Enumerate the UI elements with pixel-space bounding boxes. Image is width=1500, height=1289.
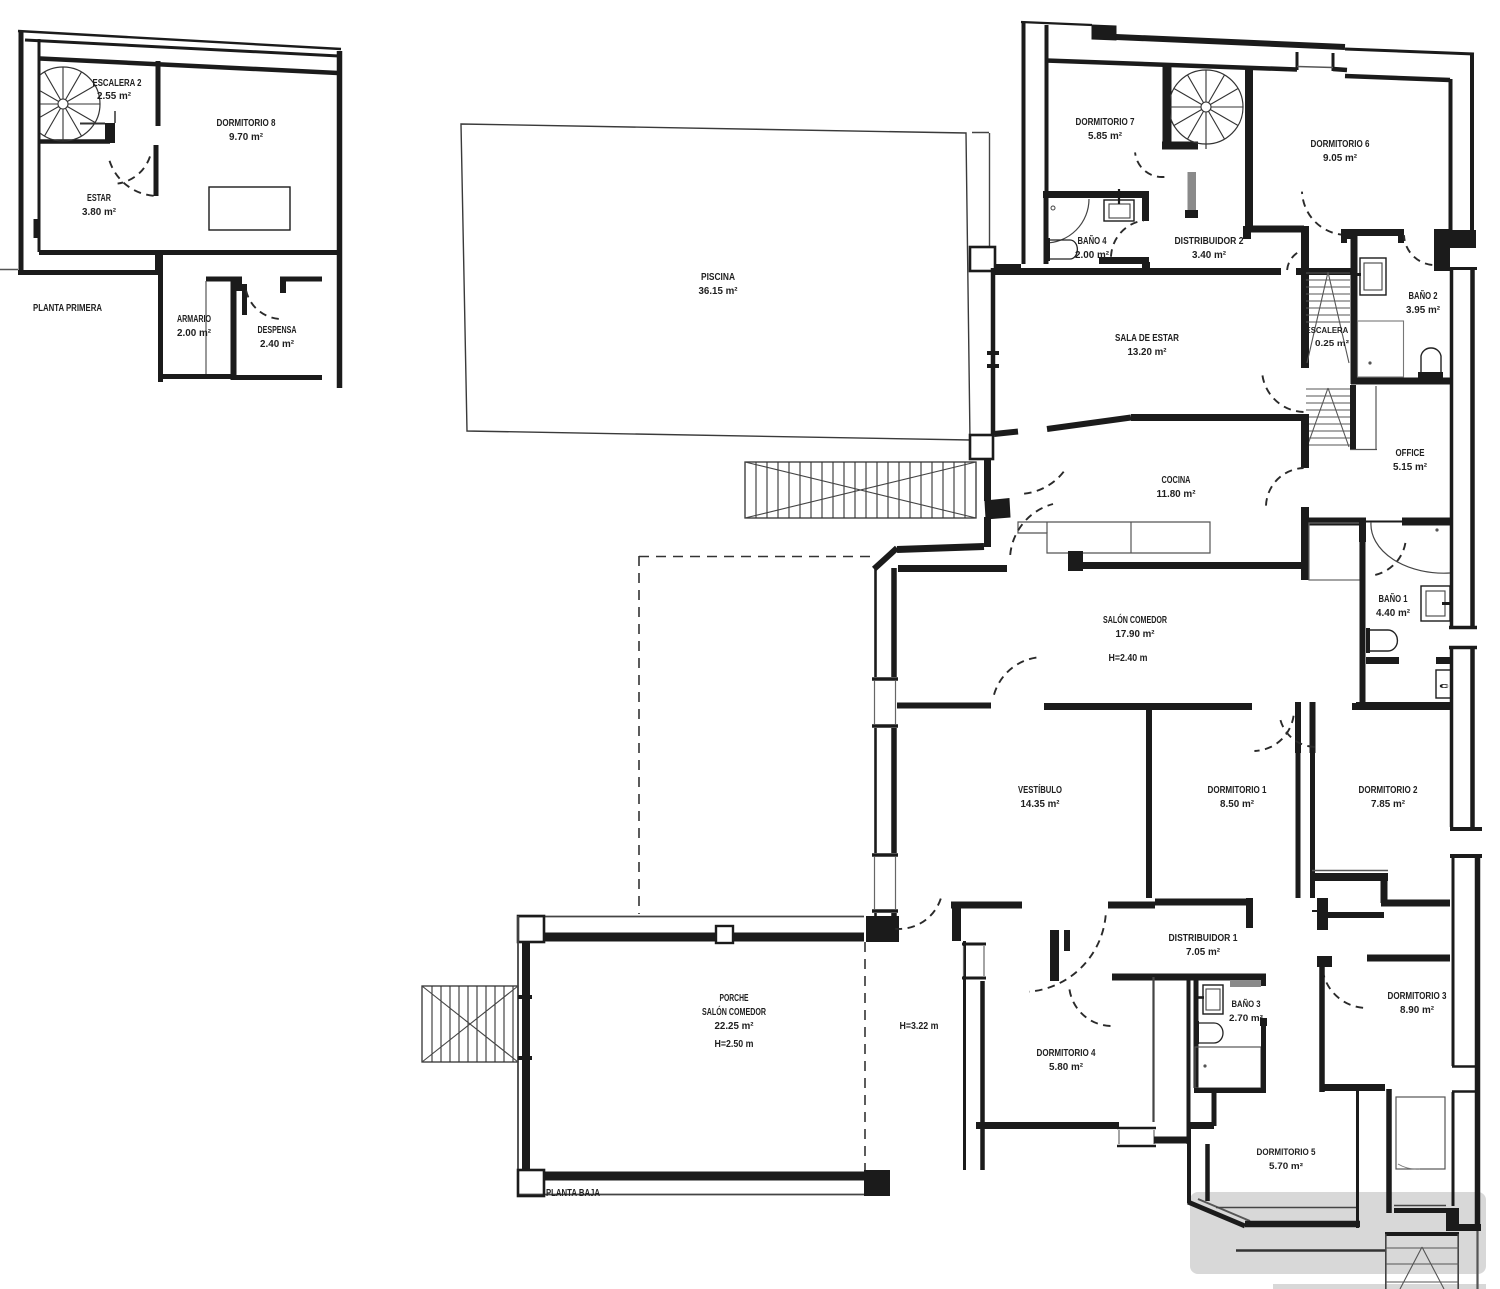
svg-text:2.00 m²: 2.00 m² [177,328,212,339]
svg-text:5.15 m²: 5.15 m² [1393,462,1428,473]
svg-text:9.05 m²: 9.05 m² [1323,153,1358,164]
svg-text:7.05 m²: 7.05 m² [1186,947,1221,958]
svg-text:COCINA: COCINA [1162,475,1191,486]
svg-text:BAÑO 2: BAÑO 2 [1409,291,1438,302]
svg-text:8.90 m²: 8.90 m² [1400,1005,1435,1016]
svg-text:5.80 m²: 5.80 m² [1049,1062,1084,1073]
svg-text:BAÑO 3: BAÑO 3 [1232,999,1261,1009]
svg-text:H=3.22 m: H=3.22 m [900,1021,939,1032]
svg-text:DESPENSA: DESPENSA [258,325,297,336]
svg-text:DORMITORIO 2: DORMITORIO 2 [1359,785,1418,796]
svg-text:14.35 m²: 14.35 m² [1021,799,1061,810]
svg-text:OFFICE: OFFICE [1396,448,1425,459]
svg-text:22.25 m²: 22.25 m² [715,1021,755,1032]
svg-text:c: c [1439,681,1449,690]
svg-text:4.40 m²: 4.40 m² [1376,608,1411,619]
svg-text:DORMITORIO 3: DORMITORIO 3 [1388,991,1447,1002]
svg-text:SALA DE ESTAR: SALA DE ESTAR [1115,333,1179,344]
svg-text:BAÑO 4: BAÑO 4 [1078,236,1107,247]
svg-text:DORMITORIO 8: DORMITORIO 8 [217,118,276,129]
svg-text:PORCHE: PORCHE [720,993,749,1004]
svg-text:BAÑO 1: BAÑO 1 [1379,594,1408,605]
svg-text:SALÓN COMEDOR: SALÓN COMEDOR [702,1006,766,1018]
svg-text:13.20 m²: 13.20 m² [1128,347,1168,358]
svg-text:0.25 m²: 0.25 m² [1315,338,1349,348]
svg-text:3.40 m²: 3.40 m² [1192,250,1227,261]
svg-text:VESTÍBULO: VESTÍBULO [1018,784,1062,796]
svg-text:PLANTA PRIMERA: PLANTA PRIMERA [33,303,102,314]
svg-text:8.50 m²: 8.50 m² [1220,799,1255,810]
svg-text:7.85 m²: 7.85 m² [1371,799,1406,810]
svg-text:SALÓN COMEDOR: SALÓN COMEDOR [1103,614,1167,626]
svg-text:3.95 m²: 3.95 m² [1406,305,1441,316]
svg-text:17.90 m²: 17.90 m² [1116,629,1156,640]
svg-text:9.70 m²: 9.70 m² [229,132,264,143]
svg-text:DORMITORIO 4: DORMITORIO 4 [1037,1048,1096,1059]
svg-text:DORMITORIO 6: DORMITORIO 6 [1311,139,1370,150]
svg-text:2.55 m²: 2.55 m² [97,91,132,102]
svg-text:DISTRIBUIDOR 1: DISTRIBUIDOR 1 [1169,933,1238,944]
svg-text:PLANTA BAJA: PLANTA BAJA [546,1188,600,1199]
svg-text:DORMITORIO 1: DORMITORIO 1 [1208,785,1267,796]
svg-text:DORMITORIO 5: DORMITORIO 5 [1257,1147,1316,1157]
svg-text:5.70 m²: 5.70 m² [1269,1161,1303,1171]
svg-text:H=2.40 m: H=2.40 m [1109,653,1148,664]
svg-text:3.80 m²: 3.80 m² [82,207,117,218]
svg-text:2.70 m²: 2.70 m² [1229,1013,1263,1023]
svg-text:5.85 m²: 5.85 m² [1088,131,1123,142]
svg-text:ARMARIO: ARMARIO [177,314,211,325]
svg-text:11.80 m²: 11.80 m² [1157,489,1197,500]
svg-text:ESTAR: ESTAR [87,193,111,204]
svg-text:36.15 m²: 36.15 m² [699,286,739,297]
svg-text:2.40 m²: 2.40 m² [260,339,295,350]
svg-text:DISTRIBUIDOR 2: DISTRIBUIDOR 2 [1175,236,1244,247]
svg-text:ESCALERA 1: ESCALERA 1 [1306,325,1355,335]
svg-text:DORMITORIO 7: DORMITORIO 7 [1076,117,1135,128]
svg-text:ESCALERA 2: ESCALERA 2 [93,78,142,89]
svg-text:2.00 m²: 2.00 m² [1075,250,1110,261]
svg-text:PISCINA: PISCINA [701,272,735,283]
svg-text:H=2.50 m: H=2.50 m [715,1039,754,1050]
